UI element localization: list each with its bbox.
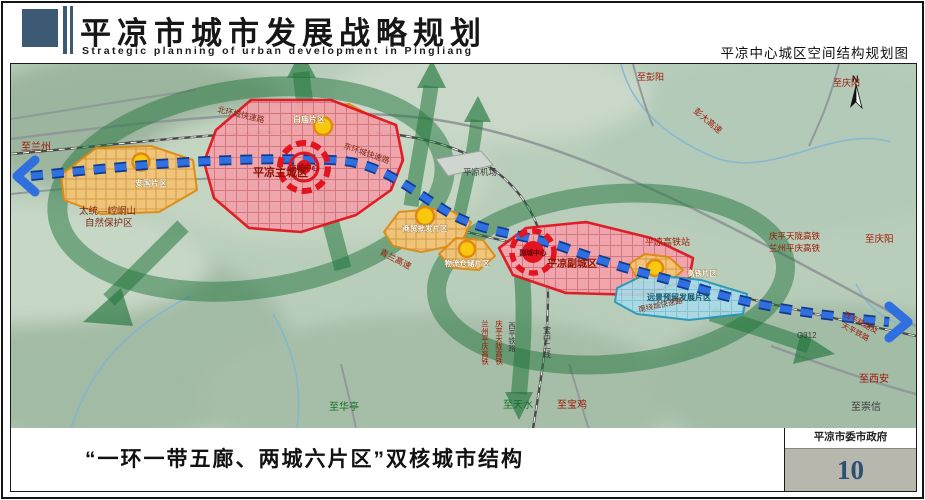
label-to-xian: 至西安: [859, 372, 889, 385]
label-gaotie-zone: 高铁片区: [687, 268, 717, 278]
corridor-south: [519, 266, 524, 394]
label-g312: G312: [797, 331, 817, 340]
label-v-xiping-rail: 西平铁路: [507, 322, 516, 353]
label-to-baoji: 至宝鸡: [557, 398, 587, 411]
header-accent-bar: [63, 6, 67, 54]
page-title-english: Strategic planning of urban development …: [82, 45, 473, 57]
label-v-qingping-hsr: 庆平天陇高铁: [494, 319, 503, 367]
page-number: 10: [785, 449, 916, 491]
label-hsr-station: 平凉高铁站: [645, 236, 690, 247]
label-v-baozhong-rail: 宝中二线: [543, 325, 552, 358]
label-to-lanzhou: 至兰州: [21, 140, 51, 153]
header-accent-bar-thin: [70, 6, 73, 54]
label-wuliu: 物流仓储片区: [445, 258, 490, 268]
header-accent-square: [22, 9, 58, 47]
label-taitong-1: 太统—崆峒山: [79, 205, 136, 217]
label-to-qingyang-e: 至庆阳: [865, 233, 894, 245]
structure-caption: “一环一带五廊、两城六片区”双核城市结构: [85, 428, 524, 491]
map-area: N 平凉主城区 主城中心 平凉副城区 副城中心 安国片区 白庙片区 商贸批发片区…: [10, 63, 917, 430]
label-to-qingyang-ne: 至庆阳: [833, 77, 860, 88]
label-sub-center: 副城中心: [519, 248, 546, 257]
label-taitong-2: 自然保护区: [85, 217, 133, 229]
title-block: 平凉市委市政府 10: [784, 428, 916, 491]
footer-bar: “一环一带五廊、两城六片区”双核城市结构 平凉市委市政府 10: [10, 428, 917, 492]
agency-name: 平凉市委市政府: [785, 428, 916, 449]
planning-page: 平凉市城市发展战略规划 Strategic planning of urban …: [0, 0, 925, 500]
label-anguo: 安国片区: [135, 178, 167, 188]
label-qingping-hsr: 庆平天陇高铁: [769, 231, 821, 241]
label-to-pengyang: 至彭阳: [637, 71, 664, 82]
label-main-center: 主城中心: [289, 162, 319, 172]
label-to-tianshui: 至天水: [503, 399, 533, 411]
label-lanzhou-hsr: 兰州平庆高铁: [769, 243, 821, 253]
label-v-lanzhou-hsr: 兰州平庆高铁: [480, 319, 489, 367]
label-sub-city: 平凉副城区: [547, 257, 597, 270]
label-airport: 平凉机场: [463, 167, 497, 177]
structure-map: N 平凉主城区 主城中心 平凉副城区 副城中心 安国片区 白庙片区 商贸批发片区…: [11, 64, 916, 429]
map-sheet-title: 平凉中心城区空间结构规划图: [721, 42, 910, 62]
label-baimiao: 白庙片区: [293, 114, 325, 124]
label-to-huating: 至华亭: [329, 400, 359, 413]
label-to-chongxin: 至崇信: [851, 401, 881, 413]
label-shangmao: 商贸批发片区: [403, 223, 448, 233]
